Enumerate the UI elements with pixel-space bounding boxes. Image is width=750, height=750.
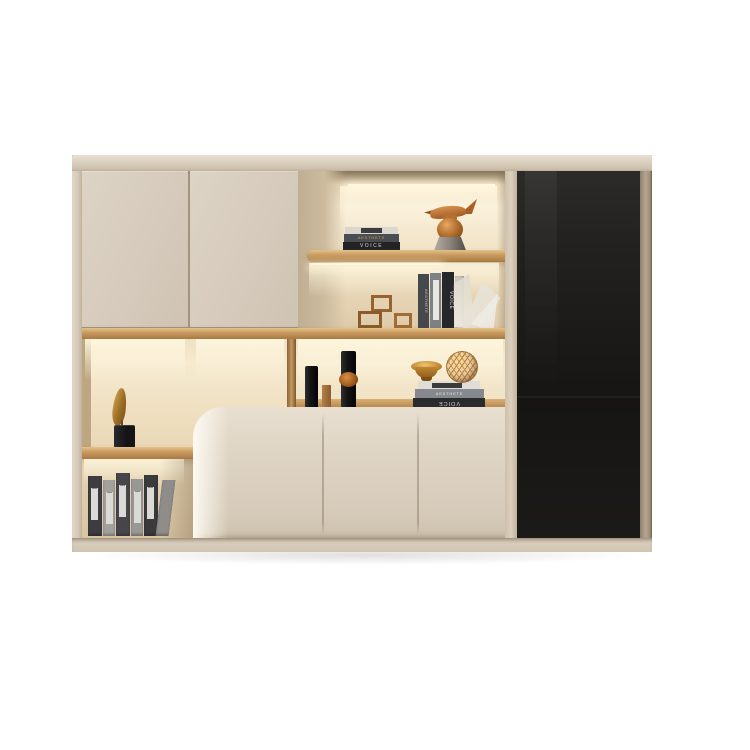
upper-door-right [190,171,299,327]
long-wood-shelf [82,328,515,339]
black-cylinder-vase [305,366,318,407]
cabinet-top-panel [72,155,652,171]
binder-sticker [119,485,126,517]
book-label-band [432,383,462,388]
standing-binder-light [131,479,143,536]
book-spine-text: AESTHETE [418,274,429,328]
standing-book-aesthete: AESTHETE [418,274,429,328]
cabinet-right-frame [640,171,652,552]
wood-cube-frame [371,295,392,312]
curved-edge-highlight [193,407,229,538]
black-glass-door [517,171,640,540]
cabinet-left-frame [72,171,82,552]
upper-wood-shelf [307,250,515,262]
lower-cabinet-doors [193,407,517,538]
book-label-band [361,228,382,233]
product-photo-cream-wall-cabinet: AESTHETE VOICE AESTHETE VOICE [0,0,750,750]
gold-wire-sphere [446,351,478,383]
led-glow [85,339,185,381]
book-spine-text: VOICE [442,272,454,328]
amber-glass-ring [339,372,358,387]
standing-binder-light [103,480,115,536]
glass-reflection-line [517,396,640,398]
door-gap [417,413,419,535]
standing-book-gray [430,273,441,328]
wood-divider-post [287,339,296,408]
standing-book-voice: VOICE [442,272,454,328]
upper-door-left [82,171,188,327]
binder-sticker [106,492,113,524]
book-spine-sticker [433,280,439,320]
wood-cube-frame [358,311,382,328]
wood-cylinder-vase [322,385,331,407]
stacked-book-aesthete: AESTHETE [344,234,399,242]
sculpture-black-base [114,425,135,448]
glass-sheen [525,171,557,392]
stacked-book-white [345,227,398,234]
cabinet-base [72,538,652,552]
gold-bowl-foot [421,377,432,381]
door-gap [322,413,324,535]
stacked-book-voice: VOICE [413,398,485,407]
vertical-divider-panel [505,171,517,540]
led-glow [196,339,284,377]
standing-binder-dark [116,473,130,536]
stacked-book-white [418,381,480,389]
standing-binder-dark [88,476,102,536]
wood-cube-frame [394,313,412,328]
binder-sticker [147,487,154,519]
small-wood-shelf [82,447,203,459]
upper-cabinet-doors [82,170,298,328]
stacked-book-aesthete: AESTHETE [415,389,484,398]
binder-sticker [134,491,141,523]
binder-sticker [91,488,98,520]
